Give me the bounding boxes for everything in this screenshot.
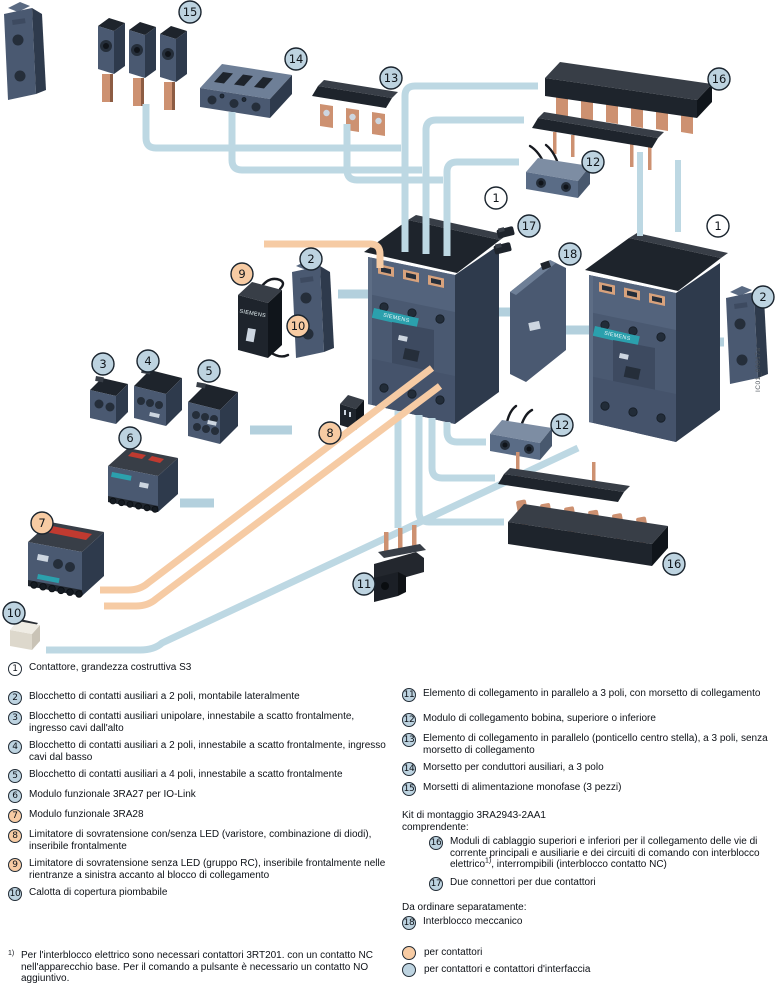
legend-item-2: 2Blocchetto di contatti ausiliari a 2 po…: [8, 691, 392, 705]
svg-text:10: 10: [7, 606, 22, 620]
kit-title: Kit di montaggio 3RA2943-2AA1: [402, 810, 772, 822]
legend-item-15: 15Morsetti di alimentazione monofase (3 …: [402, 782, 772, 796]
callout-16-top: 16: [708, 68, 730, 90]
callout-12-bottom: 12: [551, 414, 573, 436]
component-12-top-coil-module: [526, 145, 590, 198]
component-2-aux-block-left: [292, 260, 334, 358]
legend-item-5: 5Blocchetto di contatti ausiliari a 4 po…: [8, 769, 392, 783]
callout-10-blue: 10: [3, 602, 25, 624]
legend-item-7: 7Modulo funzionale 3RA28: [8, 809, 392, 823]
callout-16-bottom: 16: [663, 553, 685, 575]
callout-14: 14: [285, 48, 307, 70]
svg-text:17: 17: [522, 219, 537, 233]
callout-12-top: 12: [582, 151, 604, 173]
component-5-aux-block: [188, 382, 238, 444]
blue-dot-icon: [402, 963, 416, 977]
svg-text:16: 16: [712, 72, 727, 86]
svg-text:8: 8: [326, 426, 333, 440]
svg-text:11: 11: [357, 577, 372, 591]
callout-18: 18: [559, 243, 581, 265]
legend-item-11: 11Elemento di collegamento in parallelo …: [402, 688, 772, 702]
kit-subtitle: comprendente:: [402, 822, 772, 834]
callout-7: 7: [31, 512, 53, 534]
svg-text:14: 14: [289, 52, 304, 66]
callout-3: 3: [92, 353, 114, 375]
callout-5: 5: [198, 360, 220, 382]
color-key: per contattori per contattori e contatto…: [402, 946, 772, 977]
component-4-aux-block: [134, 368, 182, 426]
svg-text:2: 2: [759, 290, 766, 304]
callout-2-left: 2: [300, 248, 322, 270]
component-12-bottom-coil-module: [490, 406, 552, 460]
legend-item-13: 13Elemento di collegamento in parallelo …: [402, 733, 772, 756]
callout-2-right: 2: [752, 286, 774, 308]
callout-13: 13: [380, 67, 402, 89]
svg-text:1: 1: [714, 219, 721, 233]
callout-8: 8: [319, 422, 341, 444]
legend-left-column: 1Contattore, grandezza costruttiva S3 2B…: [8, 662, 392, 907]
component-16-bottom-bar: [498, 452, 630, 502]
svg-text:15: 15: [183, 5, 198, 19]
kit-items: 16 Moduli di cablaggio superiori e infer…: [429, 836, 772, 891]
component-9-surge-suppressor: SIEMENS: [238, 279, 288, 358]
footnote-text: Per l'interblocco elettrico sono necessa…: [21, 950, 386, 985]
svg-text:13: 13: [384, 71, 399, 85]
key-blue: per contattori e contattori d'interfacci…: [402, 963, 772, 977]
svg-text:18: 18: [563, 247, 578, 261]
svg-text:4: 4: [144, 354, 151, 368]
svg-text:2: 2: [307, 252, 314, 266]
separate-title: Da ordinare separatamente:: [402, 902, 772, 914]
callout-17: 17: [518, 215, 540, 237]
footnote: 1) Per l'interblocco elettrico sono nece…: [8, 950, 386, 985]
svg-text:12: 12: [555, 418, 570, 432]
legend-right-column: 11Elemento di collegamento in parallelo …: [402, 688, 772, 980]
component-15-feed-terminals: [98, 18, 187, 110]
svg-text:5: 5: [205, 364, 212, 378]
legend-item-1: 1Contattore, grandezza costruttiva S3: [8, 662, 392, 676]
svg-text:6: 6: [126, 431, 133, 445]
callout-9: 9: [231, 263, 253, 285]
callout-10-orange: 10: [287, 315, 309, 337]
legend-item-14: 14Morsetto per conduttori ausiliari, a 3…: [402, 762, 772, 776]
callout-4: 4: [137, 350, 159, 372]
svg-text:12: 12: [586, 155, 601, 169]
callout-15: 15: [179, 1, 201, 23]
legend-item-4: 4Blocchetto di contatti ausiliari a 2 po…: [8, 740, 392, 763]
legend: 1Contattore, grandezza costruttiva S3 2B…: [0, 656, 775, 1000]
component-14-aux-terminal: [200, 64, 292, 118]
legend-item-16-text: Moduli di cablaggio superiori e inferior…: [450, 836, 772, 871]
legend-item-10: 10Calotta di copertura piombabile: [8, 887, 392, 901]
legend-item-8: 8Limitatore di sovratensione con/senza L…: [8, 829, 392, 852]
component-6-iolink-module: [108, 448, 178, 512]
exploded-diagram: SIEMENS IC01_00017a: [0, 0, 775, 656]
svg-text:1: 1: [492, 191, 499, 205]
legend-item-3: 3Blocchetto di contatti ausiliari unipol…: [8, 711, 392, 734]
key-orange: per contattori: [402, 946, 772, 960]
legend-item-17: 17 Due connettori per due contattori: [429, 877, 772, 891]
page: SIEMENS IC01_00017a: [0, 0, 775, 1000]
component-18-mechanical-interlock: [510, 260, 566, 382]
legend-item-12: 12Modulo di collegamento bobina, superio…: [402, 713, 772, 727]
svg-text:16: 16: [667, 557, 682, 571]
legend-item-18: 18Interblocco meccanico: [402, 916, 772, 930]
footnote-marker: 1): [8, 948, 21, 983]
component-16-bottom-wiring-module: [508, 499, 668, 566]
svg-text:9: 9: [238, 267, 245, 281]
svg-text:7: 7: [38, 516, 45, 530]
callout-1-left: 1: [485, 187, 507, 209]
callout-1-right: 1: [707, 215, 729, 237]
legend-item-16: 16 Moduli di cablaggio superiori e infer…: [429, 836, 772, 871]
component-1-contactor-right: [585, 233, 728, 442]
legend-item-9: 9Limitatore di sovratensione senza LED (…: [8, 858, 392, 881]
svg-text:3: 3: [99, 357, 106, 371]
orange-dot-icon: [402, 946, 416, 960]
component-3-aux-block: [90, 376, 128, 424]
svg-text:10: 10: [291, 319, 306, 333]
legend-item-6: 6Modulo funzionale 3RA27 per IO-Link: [8, 789, 392, 803]
callout-11: 11: [353, 573, 375, 595]
callout-6: 6: [119, 427, 141, 449]
watermark: IC01_00017a: [755, 347, 762, 392]
component-13-star-bridge: [312, 80, 398, 136]
